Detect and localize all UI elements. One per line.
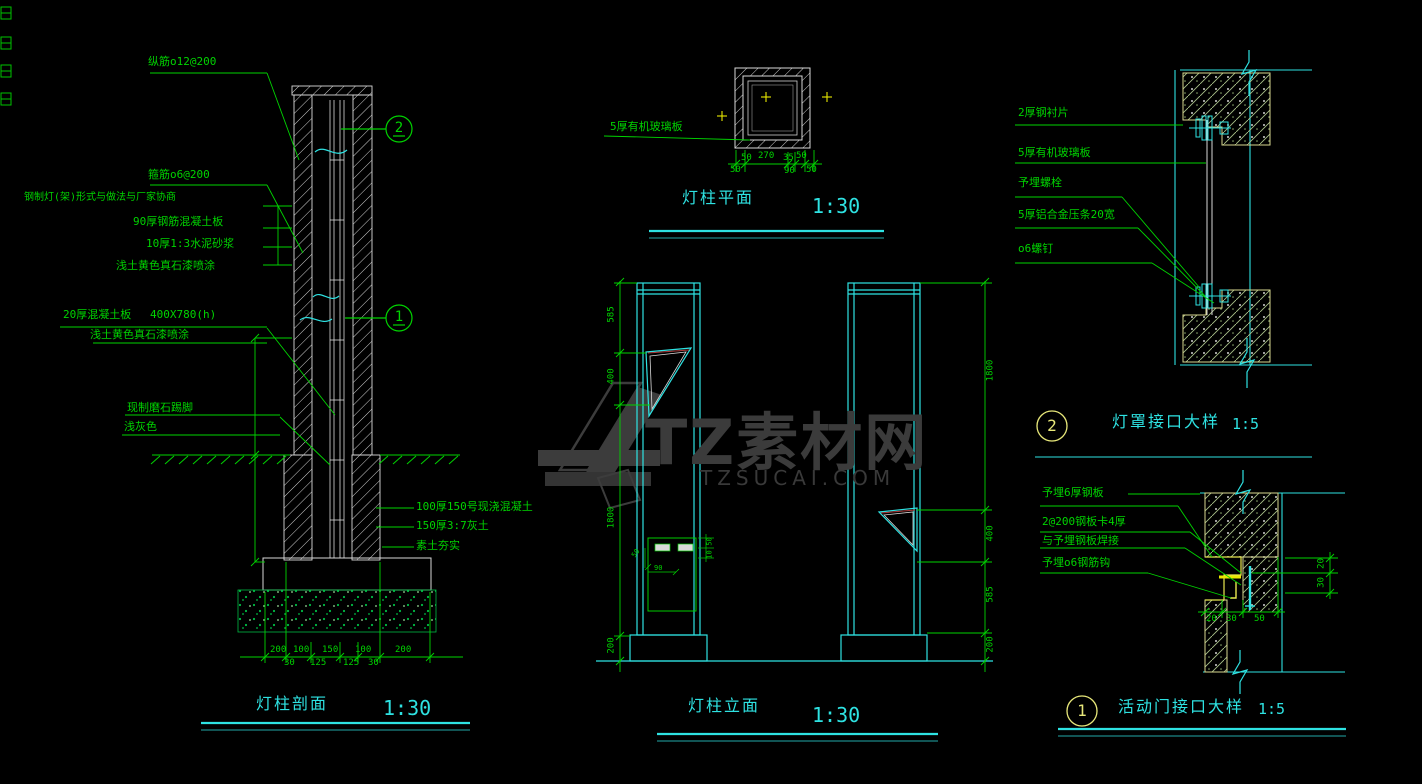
d1-dim: 20 <box>1206 615 1217 624</box>
d1-dim-right: 30 <box>1318 563 1327 603</box>
section-dim: 125 <box>310 659 326 668</box>
elevation-drawing <box>596 278 993 741</box>
plan-dim: 35 <box>783 154 794 163</box>
plan-dim: 50 <box>730 166 741 175</box>
plan-dim: 90 <box>784 167 795 176</box>
elev-dim-right: 200 <box>987 625 996 665</box>
detail1-scale: 1:5 <box>1258 699 1285 719</box>
detail2-scale: 1:5 <box>1232 414 1259 434</box>
section-dim: 30 <box>284 659 295 668</box>
plinth-wall-right <box>352 455 380 560</box>
plan-title-underline <box>649 231 884 238</box>
section-dim: 200 <box>395 646 411 655</box>
plan-wall-band <box>735 68 810 148</box>
door-dim-bottom: 90 <box>654 564 662 573</box>
detail2-title: 灯罩接口大样 <box>1112 413 1220 431</box>
plan-dim: 270 <box>758 152 774 161</box>
d1-dim: 30 <box>1226 615 1237 624</box>
detail1-title-underline <box>1058 729 1346 736</box>
section-dim: 125 <box>343 659 359 668</box>
lamp-tube <box>330 100 344 558</box>
elev-dim-left: 400 <box>608 357 617 397</box>
detail1-title: 活动门接口大样 <box>1118 698 1244 716</box>
label-mortar: 10厚1:3水泥砂浆 <box>146 238 234 250</box>
column-wall-right <box>353 95 372 455</box>
label-board-size: 400X780(h) <box>150 309 216 321</box>
d1-dim: 50 <box>1254 615 1265 624</box>
d1-label: 予埋6厚钢板 <box>1042 487 1104 499</box>
label-skirting: 现制磨石踢脚 <box>127 402 193 414</box>
footing-slab <box>263 558 431 590</box>
section-scale: 1:30 <box>383 698 431 718</box>
label-rebar-stirrup: 箍筋o6@200 <box>148 169 210 181</box>
watermark-domain: TZSUCAI.COM <box>700 466 895 490</box>
elevation-title: 灯柱立面 <box>688 697 760 715</box>
section-dim: 150 <box>322 646 338 655</box>
elevation-scale: 1:30 <box>812 705 860 725</box>
callout-1: 1 <box>392 310 406 324</box>
elev-dim-right: 585 <box>987 575 996 615</box>
door-dim-right-bottom: 10 <box>706 535 715 575</box>
d2-label: 予埋螺栓 <box>1018 177 1062 189</box>
d2-label: 5厚铝合金压条20宽 <box>1018 209 1115 221</box>
plan-center-marks <box>717 92 832 121</box>
section-drawing <box>60 73 470 730</box>
label-paint-lower: 浅土黄色真石漆喷涂 <box>90 329 189 341</box>
section-dim: 30 <box>368 659 379 668</box>
detail2-number: 2 <box>1044 418 1060 434</box>
detail1-number: 1 <box>1074 703 1090 719</box>
d2-label: 2厚钢衬片 <box>1018 107 1069 119</box>
elevation-title-underline <box>657 734 938 741</box>
label-rebar-vertical: 纵筋o12@200 <box>148 56 216 68</box>
concrete-wall-mid <box>1243 557 1278 612</box>
elev-dim-left: 585 <box>608 295 617 335</box>
d2-label: o6螺钉 <box>1018 243 1053 255</box>
plinth-wall-left <box>284 455 312 560</box>
elev-dim-right: 1800 <box>987 351 996 391</box>
label-rc-slab: 90厚钢筋混凝土板 <box>133 216 223 228</box>
triangle-opening-right <box>879 508 917 551</box>
gravel-layer <box>238 590 436 632</box>
column-cap <box>292 86 372 95</box>
elev-dim-left: 1800 <box>608 498 617 538</box>
label-acrylic-panel: 5厚有机玻璃板 <box>610 121 683 133</box>
concrete-wall-upper <box>1205 493 1278 557</box>
callout-circles <box>341 116 412 331</box>
elevation-dims-right <box>917 278 992 672</box>
elev-dim-right: 400 <box>987 514 996 554</box>
label-lamp-note: 钢制灯(架)形式与做法与厂家协商 <box>24 192 176 204</box>
clipped-left-glyphs <box>1 7 11 105</box>
cad-drawing-canvas: TZ素材网 TZSUCAI.COM 纵筋o12@200 箍筋o6@200 钢制灯… <box>0 0 1422 784</box>
label-lime-soil: 150厚3:7灰土 <box>416 520 489 532</box>
d1-label: 2@200钢板卡4厚 <box>1042 516 1126 528</box>
label-paint-upper: 浅土黄色真石漆喷涂 <box>116 260 215 272</box>
label-concrete-board: 20厚混凝土板 <box>63 309 131 321</box>
plan-glass-inner <box>748 81 797 135</box>
section-title-underline <box>201 723 470 730</box>
plan-scale: 1:30 <box>812 196 860 216</box>
d1-label: 予埋o6钢筋钩 <box>1042 557 1110 569</box>
label-skirting-color: 浅灰色 <box>124 421 157 433</box>
rebar-hook <box>1230 582 1236 598</box>
label-rammed-earth: 素土夯实 <box>416 540 460 552</box>
plan-title: 灯柱平面 <box>682 189 754 207</box>
section-dim: 100 <box>355 646 371 655</box>
section-dim: 200 <box>270 646 286 655</box>
column-wall-left <box>294 95 312 455</box>
plan-dim: 50 <box>806 166 817 175</box>
plan-dim: 50 <box>796 152 807 161</box>
elev-dim-left: 200 <box>608 626 617 666</box>
section-title: 灯柱剖面 <box>256 695 328 713</box>
plan-dim: 50 <box>741 154 752 163</box>
section-dim: 100 <box>293 646 309 655</box>
callout-2: 2 <box>392 121 406 135</box>
label-cast-concrete: 100厚150号现浇混凝土 <box>416 501 533 513</box>
d1-label: 与予埋钢板焊接 <box>1042 535 1119 547</box>
d2-label: 5厚有机玻璃板 <box>1018 147 1091 159</box>
